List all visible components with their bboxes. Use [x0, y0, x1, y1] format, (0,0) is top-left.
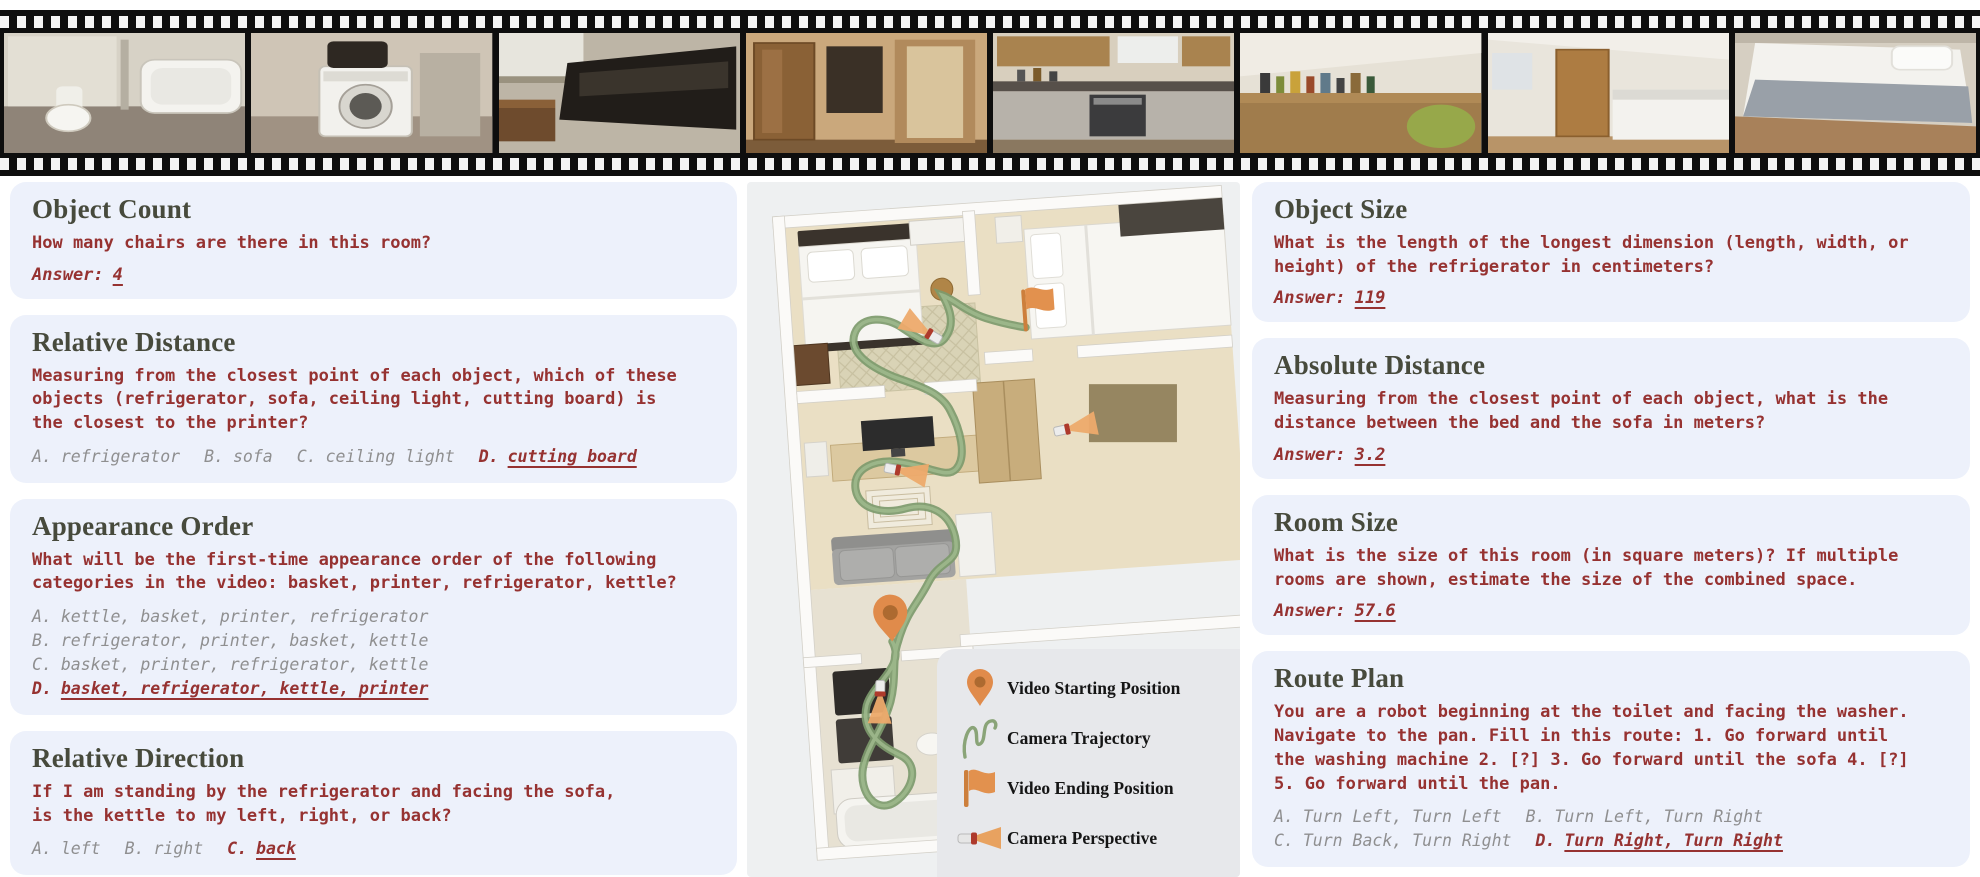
video-film-strip — [0, 10, 1980, 176]
option-text: right — [154, 839, 204, 858]
relative-distance-option: B.sofa — [204, 445, 273, 469]
room-size-title: Room Size — [1274, 507, 1948, 539]
relative-direction-option-row: A.leftB.rightC.back — [32, 837, 715, 861]
answer-label: Answer: — [1274, 601, 1346, 621]
legend-label-end: Video Ending Position — [1007, 778, 1232, 799]
bed1-pillow-left — [807, 249, 855, 282]
object-count-question: How many chairs are there in this room? — [32, 232, 715, 256]
film-frame-hallway-wardrobe — [746, 33, 987, 153]
appearance-order-option-row: A.kettle, basket, printer, refrigerator — [32, 605, 715, 629]
film-sprockets-bottom — [0, 158, 1980, 170]
film-frames — [4, 33, 1976, 153]
film-sprockets-top — [0, 16, 1980, 28]
appearance-order-option-row: D.basket, refrigerator, kettle, printer — [32, 677, 715, 701]
relative-distance-options: A.refrigeratorB.sofaC.ceiling lightD.cut… — [32, 445, 715, 469]
appearance-order-option-row: B.refrigerator, printer, basket, kettle — [32, 629, 715, 653]
relative-distance-option-row: A.refrigeratorB.sofaC.ceiling lightD.cut… — [32, 445, 715, 469]
absolute-distance-title: Absolute Distance — [1274, 350, 1948, 382]
absolute-distance-answer: Answer:3.2 — [1274, 445, 1948, 465]
room-size-answer: Answer:57.6 — [1274, 601, 1948, 621]
card-appearance-order: Appearance OrderWhat will be the first-t… — [10, 499, 737, 715]
relative-direction-question-line: If I am standing by the refrigerator and… — [32, 782, 615, 802]
monitor-stand — [891, 448, 906, 457]
relative-distance-question: Measuring from the closest point of each… — [32, 365, 715, 436]
appearance-order-option-correct: D.basket, refrigerator, kettle, printer — [32, 677, 428, 701]
legend-label-trajectory: Camera Trajectory — [1007, 728, 1232, 749]
answer-value: 4 — [113, 265, 123, 285]
relative-direction-title: Relative Direction — [32, 743, 715, 775]
camera-perspective-icon — [957, 825, 1003, 851]
option-letter: C. — [297, 447, 317, 466]
route-plan-options: A.Turn Left, Turn LeftB.Turn Left, Turn … — [1274, 805, 1948, 853]
absolute-distance-question-line: distance between the bed and the sofa in… — [1274, 413, 1765, 433]
option-text: Turn Back, Turn Right — [1303, 831, 1512, 850]
option-text: kettle, basket, printer, refrigerator — [61, 607, 429, 626]
option-text: cutting board — [508, 447, 637, 466]
film-frame-washing-machine — [251, 33, 492, 153]
legend-label-camera: Camera Perspective — [1007, 828, 1232, 849]
relative-distance-option-correct: D.cutting board — [479, 445, 637, 469]
legend-item-end: Video Ending Position — [953, 763, 1232, 813]
answer-label: Answer: — [1274, 445, 1346, 465]
option-text: Turn Left, Turn Left — [1303, 807, 1502, 826]
answer-value: 57.6 — [1355, 601, 1396, 621]
film-frame-living-room-sofa — [499, 33, 740, 153]
trajectory-icon — [961, 717, 999, 759]
option-letter: A. — [32, 607, 52, 626]
object-count-title: Object Count — [32, 194, 715, 226]
door-mat — [1089, 384, 1177, 442]
appearance-order-option: B.refrigerator, printer, basket, kettle — [32, 629, 428, 653]
relative-distance-question-line: Measuring from the closest point of each… — [32, 366, 677, 386]
object-size-title: Object Size — [1274, 194, 1948, 226]
object-count-question-line: How many chairs are there in this room? — [32, 233, 431, 253]
appearance-order-option-row: C.basket, printer, refrigerator, kettle — [32, 653, 715, 677]
relative-direction-option-correct: C.back — [227, 837, 296, 861]
appearance-order-question-line: What will be the first-time appearance o… — [32, 550, 656, 570]
film-frame-bathroom — [4, 33, 245, 153]
right-question-column: Object SizeWhat is the length of the lon… — [1252, 182, 1970, 867]
film-frame-bedroom-bed — [1735, 33, 1976, 153]
room-size-question-line: rooms are shown, estimate the size of th… — [1274, 570, 1857, 590]
card-route-plan: Route PlanYou are a robot beginning at t… — [1252, 651, 1970, 867]
bench — [909, 217, 969, 245]
vsi-benchmark-figure: Object CountHow many chairs are there in… — [0, 0, 1980, 877]
floorplan-panel: Video Starting Position Camera Trajector… — [747, 182, 1240, 877]
option-text: back — [256, 839, 296, 858]
floorplan-legend: Video Starting Position Camera Trajector… — [937, 649, 1240, 877]
absolute-distance-question-line: Measuring from the closest point of each… — [1274, 389, 1888, 409]
answer-value: 3.2 — [1355, 445, 1386, 465]
room-size-question-line: What is the size of this room (in square… — [1274, 546, 1898, 566]
card-relative-distance: Relative DistanceMeasuring from the clos… — [10, 315, 737, 483]
answer-label: Answer: — [1274, 288, 1346, 308]
option-letter: B. — [32, 631, 52, 650]
relative-direction-question: If I am standing by the refrigerator and… — [32, 781, 715, 829]
legend-item-start: Video Starting Position — [953, 663, 1232, 713]
card-absolute-distance: Absolute DistanceMeasuring from the clos… — [1252, 338, 1970, 478]
relative-direction-options: A.leftB.rightC.back — [32, 837, 715, 861]
card-relative-direction: Relative DirectionIf I am standing by th… — [10, 731, 737, 875]
route-plan-question-line: Navigate to the pan. Fill in this route:… — [1274, 726, 1888, 746]
route-plan-question: You are a robot beginning at the toilet … — [1274, 701, 1948, 796]
object-size-question-line: What is the length of the longest dimens… — [1274, 233, 1909, 253]
route-plan-question-line: You are a robot beginning at the toilet … — [1274, 702, 1909, 722]
option-letter: A. — [1274, 807, 1294, 826]
film-frame-bedroom-cabinet — [1488, 33, 1729, 153]
legend-label-start: Video Starting Position — [1007, 678, 1232, 699]
end-flag-icon — [961, 768, 999, 808]
nightstand — [995, 215, 1023, 243]
answer-value: 119 — [1355, 288, 1386, 308]
option-text: basket, refrigerator, kettle, printer — [61, 679, 429, 698]
object-count-answer: Answer:4 — [32, 265, 715, 285]
relative-distance-question-line: objects (refrigerator, sofa, ceiling lig… — [32, 389, 656, 409]
relative-distance-question-line: the closest to the printer? — [32, 413, 308, 433]
option-text: sofa — [233, 447, 273, 466]
option-letter: D. — [479, 447, 499, 466]
option-letter: B. — [1526, 807, 1546, 826]
option-text: Turn Left, Turn Right — [1554, 807, 1763, 826]
monitor — [861, 416, 935, 451]
side-table — [793, 343, 830, 385]
appearance-order-option: A.kettle, basket, printer, refrigerator — [32, 605, 428, 629]
route-plan-option: C.Turn Back, Turn Right — [1274, 829, 1512, 853]
shelf — [804, 442, 828, 477]
appearance-order-title: Appearance Order — [32, 511, 715, 543]
option-letter: C. — [1274, 831, 1294, 850]
object-size-answer: Answer:119 — [1274, 288, 1948, 308]
option-text: Turn Right, Turn Right — [1564, 831, 1783, 850]
card-room-size: Room SizeWhat is the size of this room (… — [1252, 495, 1970, 635]
film-frame-desk-with-bottles — [1240, 33, 1481, 153]
relative-distance-option: A.refrigerator — [32, 445, 180, 469]
route-plan-question-line: the washing machine 2. [?] 3. Go forward… — [1274, 750, 1909, 770]
route-plan-option-correct: D.Turn Right, Turn Right — [1536, 829, 1783, 853]
tv-stand — [956, 512, 996, 576]
option-letter: A. — [32, 447, 52, 466]
sofa-cushion-right — [895, 543, 951, 577]
route-plan-option: A.Turn Left, Turn Left — [1274, 805, 1502, 829]
relative-direction-question-line: is the kettle to my left, right, or back… — [32, 806, 452, 826]
option-text: left — [61, 839, 101, 858]
route-plan-option: B.Turn Left, Turn Right — [1526, 805, 1764, 829]
bed1-pillow-right — [861, 246, 909, 279]
card-object-count: Object CountHow many chairs are there in… — [10, 182, 737, 299]
option-text: basket, printer, refrigerator, kettle — [61, 655, 429, 674]
film-frame-kitchen — [993, 33, 1234, 153]
appearance-order-option: C.basket, printer, refrigerator, kettle — [32, 653, 428, 677]
option-letter: C. — [32, 655, 52, 674]
relative-distance-option: C.ceiling light — [297, 445, 455, 469]
appearance-order-question: What will be the first-time appearance o… — [32, 549, 715, 597]
left-question-column: Object CountHow many chairs are there in… — [10, 182, 737, 875]
option-text: refrigerator, printer, basket, kettle — [61, 631, 429, 650]
route-plan-option-row: C.Turn Back, Turn RightD.Turn Right, Tur… — [1274, 829, 1948, 853]
route-plan-title: Route Plan — [1274, 663, 1948, 695]
option-letter: D. — [32, 679, 52, 698]
bed2-pillow-top — [1030, 233, 1063, 279]
start-pin-icon — [966, 669, 994, 707]
appearance-order-question-line: categories in the video: basket, printer… — [32, 573, 677, 593]
appearance-order-options: A.kettle, basket, printer, refrigeratorB… — [32, 605, 715, 701]
legend-item-trajectory: Camera Trajectory — [953, 713, 1232, 763]
option-letter: B. — [125, 839, 145, 858]
legend-item-camera: Camera Perspective — [953, 813, 1232, 863]
option-letter: A. — [32, 839, 52, 858]
route-plan-question-line: 5. Go forward until the pan. — [1274, 774, 1561, 794]
object-size-question: What is the length of the longest dimens… — [1274, 232, 1948, 280]
object-size-question-line: height) of the refrigerator in centimete… — [1274, 257, 1714, 277]
option-letter: D. — [1536, 831, 1556, 850]
relative-direction-option: A.left — [32, 837, 101, 861]
sofa-cushion-left — [839, 547, 895, 581]
option-letter: C. — [227, 839, 247, 858]
relative-direction-option: B.right — [125, 837, 204, 861]
option-text: ceiling light — [326, 447, 455, 466]
absolute-distance-question: Measuring from the closest point of each… — [1274, 388, 1948, 436]
option-text: refrigerator — [61, 447, 180, 466]
room-size-question: What is the size of this room (in square… — [1274, 545, 1948, 593]
route-plan-option-row: A.Turn Left, Turn LeftB.Turn Left, Turn … — [1274, 805, 1948, 829]
relative-distance-title: Relative Distance — [32, 327, 715, 359]
option-letter: B. — [204, 447, 224, 466]
answer-label: Answer: — [32, 265, 104, 285]
card-object-size: Object SizeWhat is the length of the lon… — [1252, 182, 1970, 322]
